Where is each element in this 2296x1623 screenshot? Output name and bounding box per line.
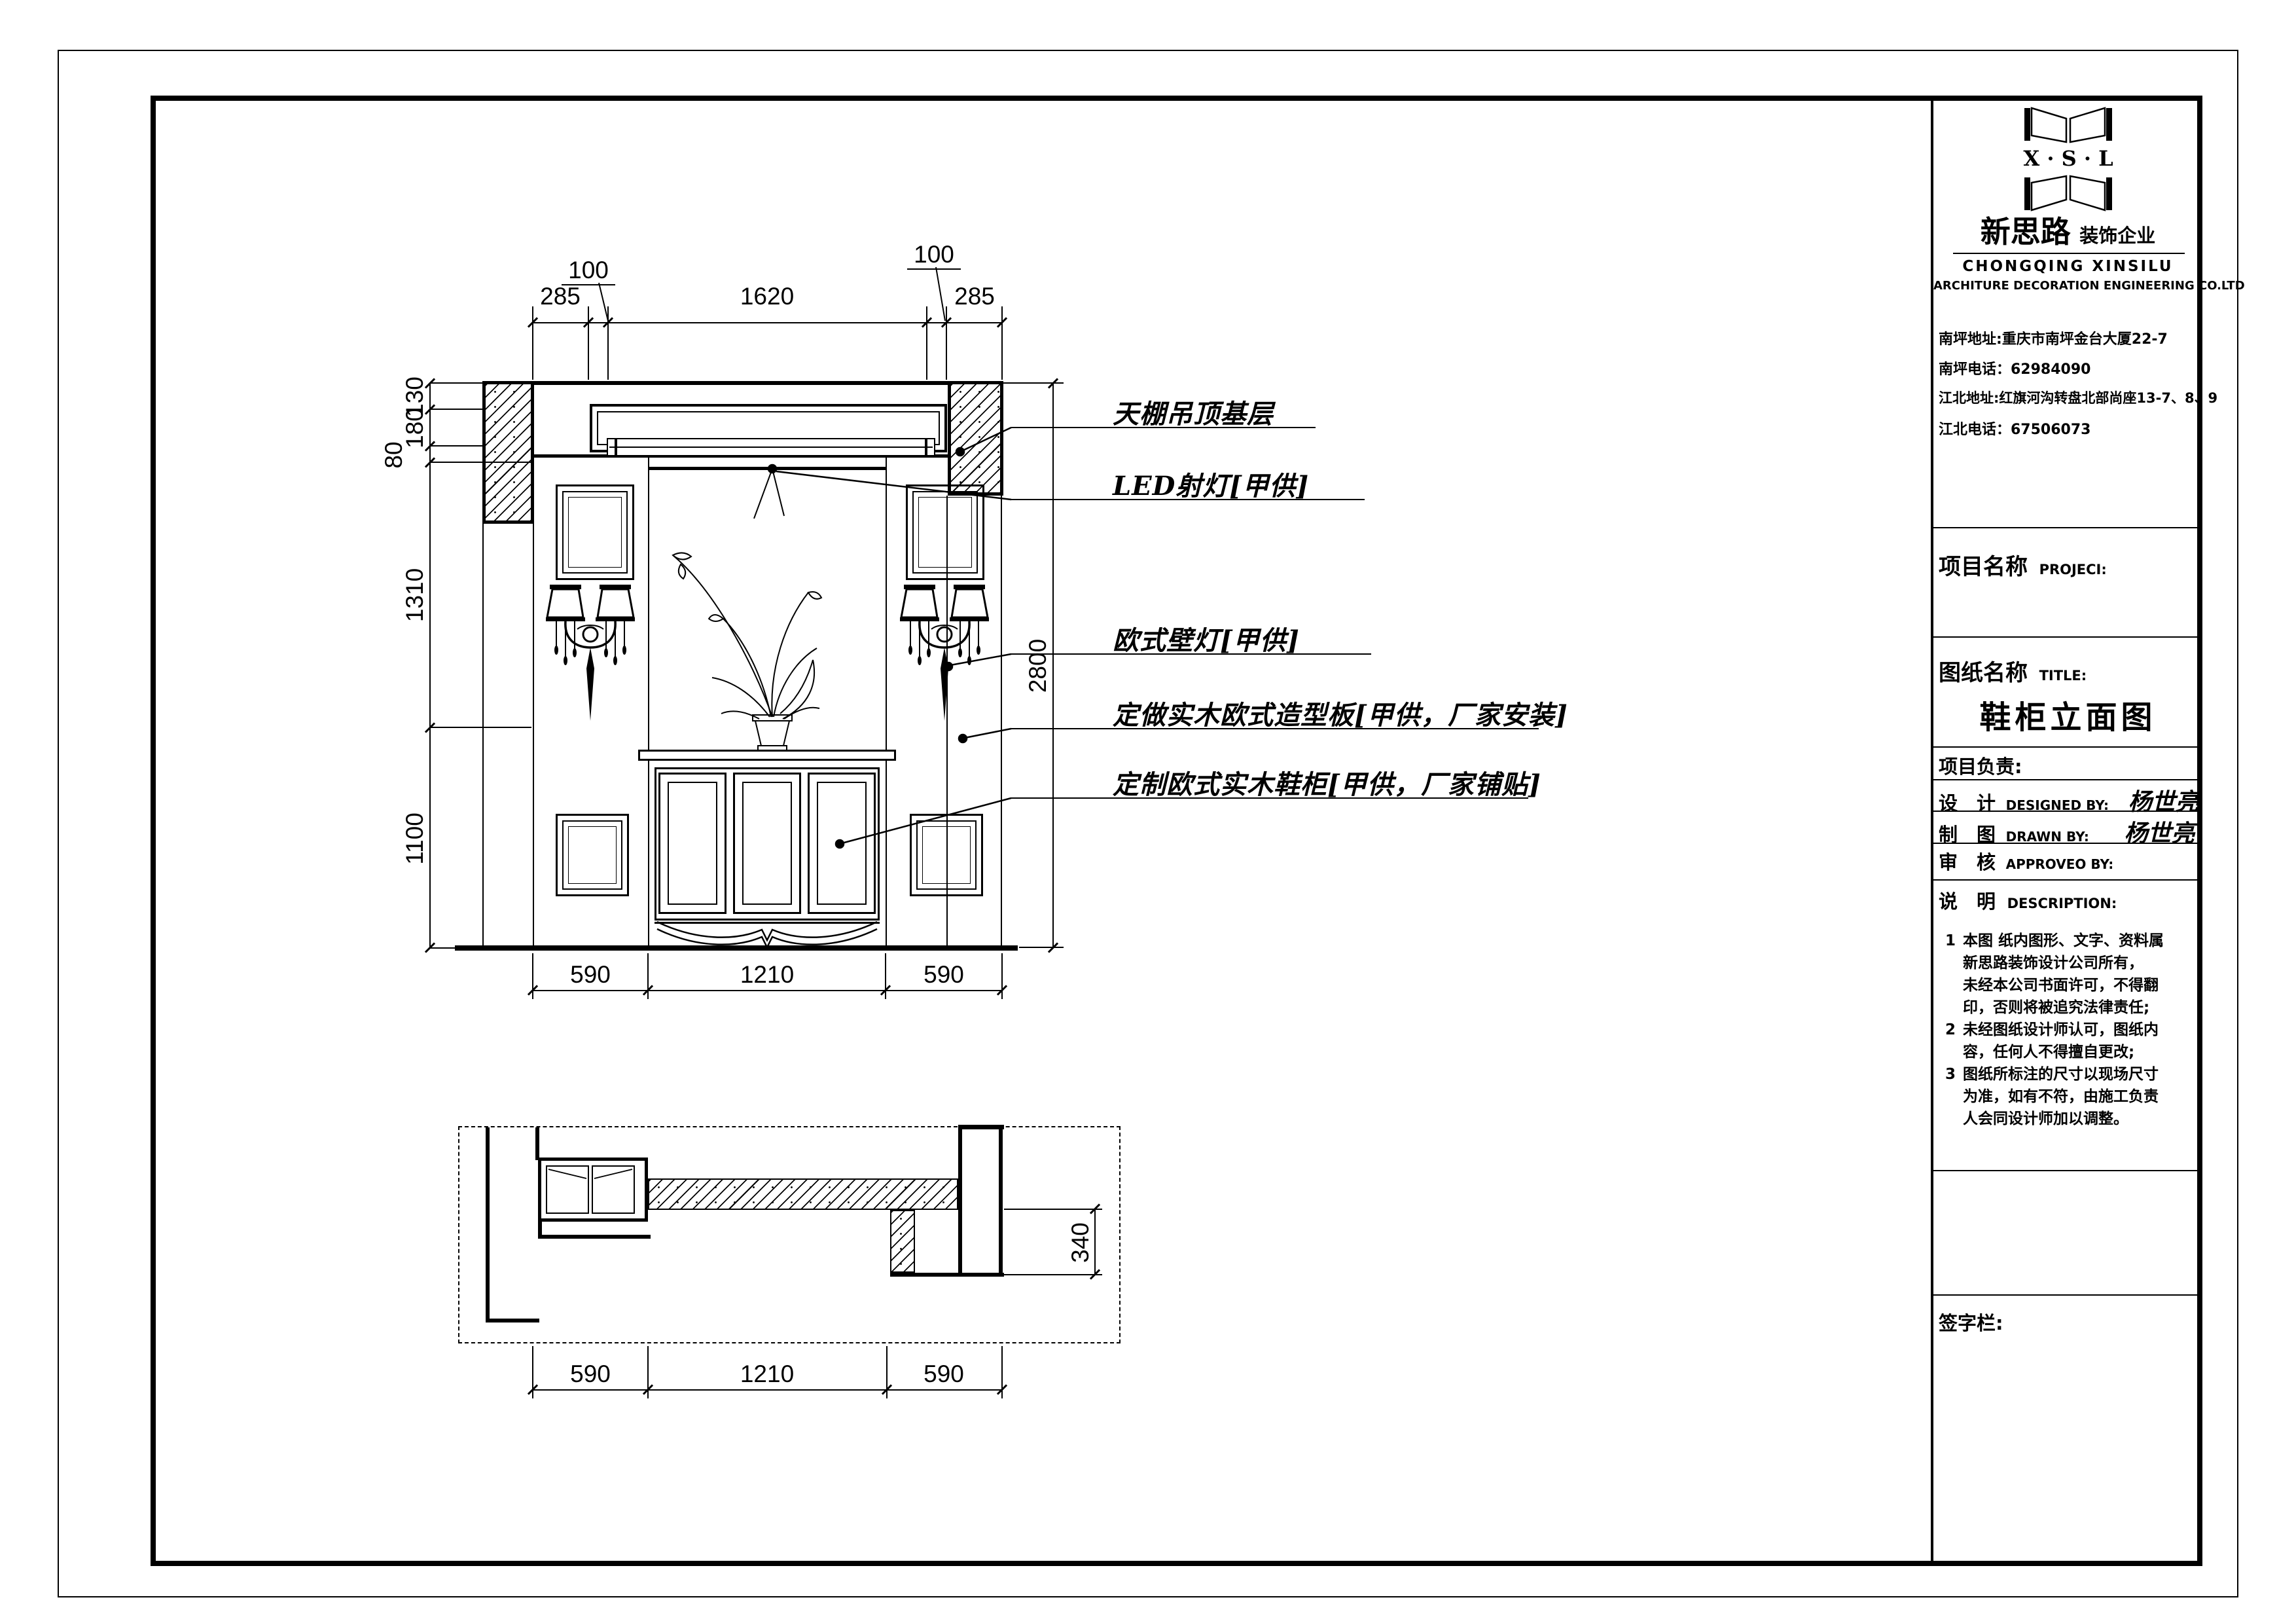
dim-label: 1310 (401, 549, 425, 641)
signature-label: 签字栏: (1939, 1308, 2003, 1336)
annotation-underline (1011, 427, 1316, 428)
tb-divider (1933, 879, 2202, 881)
dim-ext (1019, 947, 1064, 948)
role-row-design: 设 计 DESIGNED BY: 杨世亮 (1939, 783, 2199, 817)
plan-wall (538, 1235, 651, 1239)
niche-side (886, 458, 887, 947)
project-label-en: PROJECI: (2039, 562, 2107, 577)
dim-label: 285 (948, 283, 1001, 310)
dim-ext (926, 306, 927, 380)
annotation-panel: 定做实木欧式造型板[甲供，厂家安装] (1113, 694, 1568, 732)
dim-label: 2800 (1024, 620, 1048, 712)
annotation-underline (1011, 728, 1539, 729)
cabinet-door (808, 773, 876, 914)
project-label: 项目名称 PROJECI: (1939, 549, 2107, 581)
dim-label: 1210 (728, 1360, 806, 1388)
role-row-approved: 审 核 APPROVEO BY: (1939, 847, 2129, 875)
dim-ext (607, 306, 609, 380)
led-strip-cap-right (925, 438, 927, 456)
company-name-en: CHONGQING XINSILU (1933, 258, 2202, 275)
dim-ext (946, 306, 947, 380)
dim-ext (532, 306, 533, 380)
dim-ext (1001, 306, 1003, 380)
tb-divider (1933, 1170, 2202, 1171)
niche-top-line (648, 467, 887, 470)
contact-line: 江北电话：67506073 (1939, 418, 2090, 439)
company-name-en2: ARCHITURE DECORATION ENGINEERING CO.LTD (1933, 279, 2202, 293)
wall-panel-upper-left (556, 484, 634, 580)
project-label-cn: 项目名称 (1939, 554, 2028, 580)
contact-line: 南坪地址:重庆市南坪金台大厦22-7 (1939, 327, 2168, 348)
tb-divider (1933, 527, 2202, 528)
dim-ext (647, 953, 649, 999)
plan-board-slab (648, 1178, 958, 1210)
desc-label: 说 明 DESCRIPTION: (1939, 886, 2117, 914)
plan-wall (535, 1127, 539, 1160)
role-value: 杨世亮 (2128, 788, 2199, 816)
description-line: 人会同设计师加以调整。 (1945, 1108, 2200, 1130)
lead-label: 项目负责: (1939, 752, 2022, 779)
description-line: 为准，如有不符，由施工负责 (1945, 1085, 2200, 1108)
dim-ext (588, 306, 589, 380)
sheet-title: 鞋柜立面图 (1933, 691, 2202, 737)
plan-wall (958, 1125, 1004, 1129)
cabinet-door-bottom-line (655, 922, 880, 924)
desc-label-en: DESCRIPTION: (2007, 896, 2117, 911)
dim-line-plan-right (1094, 1209, 1096, 1275)
plan-door-leaf (546, 1165, 589, 1214)
dim-ext (532, 953, 533, 999)
beam-top-line (482, 381, 1002, 385)
sheet-label-en: TITLE: (2039, 668, 2087, 684)
role-cn: 审 核 (1939, 851, 1996, 873)
desc-label-cn: 说 明 (1939, 890, 1996, 913)
annotation-led: LED射灯[甲供] (1113, 465, 1309, 503)
titleblock-divider (1931, 96, 1933, 1566)
annotation-underline (1011, 653, 1371, 655)
dim-ext (429, 409, 482, 410)
plan-wall (486, 1319, 539, 1322)
dim-label: 285 (534, 283, 586, 310)
role-en: APPROVEO BY: (2006, 856, 2114, 872)
role-value: 杨世亮 (2124, 820, 2195, 847)
dim-label: 100 (907, 241, 961, 270)
role-en: DRAWN BY: (2006, 829, 2089, 845)
role-cn: 设 计 (1939, 792, 1996, 814)
sheet-label: 图纸名称 TITLE: (1939, 655, 2087, 687)
dim-label: 590 (911, 1360, 977, 1388)
company-name-tag: 装饰企业 (2079, 225, 2155, 247)
description-line: 3图纸所标注的尺寸以现场尺寸 (1945, 1063, 2200, 1085)
description-line: 1本图 纸内图形、文字、资料属 (1945, 930, 2200, 952)
cabinet-countertop (638, 750, 896, 761)
contact-line: 江北地址:红旗河沟转盘北部尚座13-7、8、9 (1939, 388, 2217, 407)
dim-ext (1001, 953, 1003, 999)
plan-slab-notch (890, 1210, 915, 1273)
main-frame (151, 96, 2202, 1566)
tb-divider (1933, 779, 2202, 780)
dim-ext (885, 953, 886, 999)
contact-line: 南坪电话：62984090 (1939, 357, 2090, 378)
dim-ext (429, 947, 469, 949)
annotation-underline (1011, 499, 1365, 500)
dim-ext (429, 382, 482, 384)
annotation-sconce: 欧式壁灯[甲供] (1113, 619, 1300, 657)
dim-line-plan-bottom (533, 1389, 1002, 1391)
plan-wall (999, 1129, 1003, 1277)
company-logo-icon: X · S · L (2006, 107, 2130, 211)
plan-wall (958, 1129, 962, 1277)
role-cn: 制 图 (1939, 824, 1996, 846)
role-row-drawn: 制 图 DRAWN BY: 杨世亮 (1939, 814, 2195, 848)
plan-wall (890, 1273, 1004, 1277)
tb-divider (1933, 1294, 2202, 1296)
wall-panel-upper-right (906, 484, 984, 580)
wall-panel-lower-right (910, 814, 983, 896)
wall-hatch-left (482, 381, 534, 524)
annotation-underline (1011, 797, 1528, 799)
description-line: 2未经图纸设计师认可，图纸内 (1945, 1019, 2200, 1041)
annotation-cabinet: 定制欧式实木鞋柜[甲供，厂家铺贴] (1113, 763, 1541, 801)
dim-label: 80 (380, 409, 404, 501)
dim-line-bottom (533, 990, 1002, 991)
wall-panel-lower-left (556, 814, 629, 896)
dim-label: 590 (911, 961, 977, 989)
description-line: 容，任何人不得擅自更改; (1945, 1041, 2200, 1063)
dim-ext (429, 727, 531, 728)
floor-line (455, 945, 1018, 951)
annotation-ceiling: 天棚吊顶基层 (1113, 393, 1274, 431)
dim-label: 590 (558, 961, 623, 989)
company-name: 新思路 装饰企业 (1933, 208, 2202, 251)
description-line: 印，否则将被追究法律责任; (1945, 996, 2200, 1019)
wall-edge (1001, 496, 1002, 947)
description-block: 1本图 纸内图形、文字、资料属 新思路装饰设计公司所有， 未经本公司书面许可，不… (1945, 930, 2200, 1130)
plan-door-leaf (592, 1165, 635, 1214)
sheet-label-cn: 图纸名称 (1939, 660, 2028, 686)
logo-rule (1953, 253, 2185, 254)
cabinet-door (658, 773, 726, 914)
svg-text:X · S · L: X · S · L (2023, 146, 2113, 171)
tb-divider (1933, 636, 2202, 638)
led-strip-cap-left (615, 438, 617, 456)
dim-label: 100 (562, 257, 615, 285)
drawing-sheet: 285 100 1620 100 285 130 180 80 1310 110… (0, 0, 2296, 1623)
dim-label: 1100 (401, 793, 425, 884)
niche-side (648, 458, 649, 947)
tb-divider (1933, 746, 2202, 748)
wall-hatch-right (948, 381, 1003, 496)
cabinet-door (733, 773, 801, 914)
dim-label: 1210 (728, 961, 806, 989)
led-strip-mid-line (609, 447, 933, 448)
plan-wall (486, 1127, 490, 1322)
description-line: 新思路装饰设计公司所有， (1945, 952, 2200, 974)
dim-line-right (1052, 383, 1054, 948)
dim-label: 340 (1067, 1197, 1090, 1288)
wall-edge (533, 524, 534, 947)
description-line: 未经本公司书面许可，不得翻 (1945, 974, 2200, 996)
wall-edge (482, 524, 484, 947)
dim-label: 1620 (728, 283, 806, 310)
dim-label: 590 (558, 1360, 623, 1388)
dim-ext (429, 462, 531, 463)
dim-ext (429, 445, 482, 447)
company-name-cn: 新思路 (1981, 214, 2071, 249)
dim-line-top (533, 322, 1002, 323)
dim-line-left (429, 383, 431, 948)
role-en: DESIGNED BY: (2006, 797, 2109, 813)
